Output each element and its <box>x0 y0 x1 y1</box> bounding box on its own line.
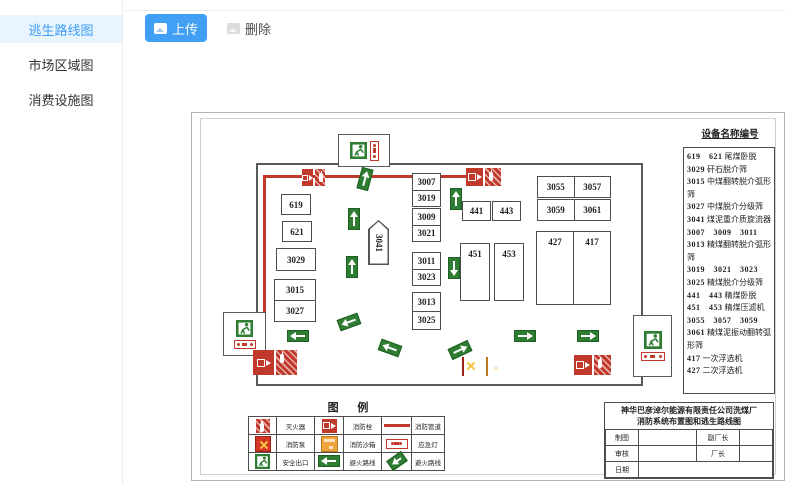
header-divider <box>123 10 786 11</box>
fire-sandbox-icon <box>321 436 338 452</box>
emergency-light-icon <box>386 439 408 449</box>
room-box: 427417 <box>536 231 611 305</box>
sidebar-item-consumer-facility-map[interactable]: 消费设施图 <box>0 85 122 113</box>
equipment-item: 417 一次浮选机 <box>687 353 771 366</box>
route-arrow-icon <box>346 256 358 278</box>
route-arrow-icon <box>287 330 309 342</box>
field-label: 制图 <box>606 430 639 446</box>
room-box: 3029 <box>276 248 316 271</box>
equipment-item: 451 453 精煤压滤机 <box>687 302 771 315</box>
room-box: 30113023 <box>412 252 441 286</box>
fire-station-bottom-left <box>253 350 297 375</box>
equipment-item: 3041 煤泥重介质旋流器 <box>687 214 771 227</box>
room-box: 30553057 <box>537 176 611 198</box>
safety-exit-right <box>633 315 672 377</box>
exit-icon <box>236 320 253 337</box>
fire-extinguisher-icon <box>315 169 325 186</box>
legend-label: 避火路线 <box>344 453 382 471</box>
fire-extinguisher-icon <box>594 355 611 375</box>
legend-title: 图 例 <box>312 399 392 415</box>
room-box: 453 <box>494 243 524 301</box>
field-value <box>639 430 697 446</box>
route-arrow-icon <box>514 330 536 342</box>
legend-label: 消防管道 <box>412 417 445 435</box>
field-value <box>639 446 697 462</box>
title-block: 神华巴彦淖尔能源有限责任公司洗煤厂 消防系统布置图和逃生路线图 制图 副厂长 审… <box>604 402 774 479</box>
equipment-item: 3027 中煤脱介分级筛 <box>687 201 771 214</box>
fire-hydrant-icon <box>466 168 483 186</box>
field-value <box>740 446 773 462</box>
legend-label: 消防泵 <box>277 435 315 453</box>
fire-hydrant-icon <box>322 419 337 433</box>
equipment-item: 3019 3021 3023 3025 精煤脱介分级筛 <box>687 264 771 289</box>
fire-pump-icon <box>255 436 271 452</box>
legend-label: 安全出口 <box>277 453 315 471</box>
room-box: 443 <box>492 201 521 221</box>
equipment-item: 3029 矸石脱介筛 <box>687 164 771 177</box>
legend-table: 灭火器 消防栓 消防管道 消防泵 消防沙箱 应急灯 安全出口 避火路线 避火路线 <box>248 416 445 471</box>
field-label: 厂长 <box>697 446 740 462</box>
emergency-light-icon <box>641 352 665 361</box>
room-box-pentagon: 3041 <box>368 220 389 265</box>
sidebar-item-escape-route-map[interactable]: 逃生路线图 <box>0 15 122 43</box>
legend-label: 灭火器 <box>277 417 315 435</box>
exit-icon <box>644 331 662 349</box>
field-label: 副厂长 <box>697 430 740 446</box>
route-arrow-diagonal-icon <box>386 450 408 470</box>
field-label: 日期 <box>606 462 639 478</box>
route-arrow-icon <box>348 208 360 230</box>
room-box: 30593061 <box>537 199 611 221</box>
fire-pump-icon <box>462 357 464 376</box>
delete-button[interactable]: 删除 <box>221 17 277 39</box>
field-value <box>639 462 773 478</box>
fire-hydrant-icon <box>253 350 274 375</box>
upload-button[interactable]: 上传 <box>145 14 207 42</box>
equipment-item: 427 二次浮选机 <box>687 365 771 378</box>
fire-sandbox-icon <box>486 357 488 376</box>
fire-station-bottom-right <box>574 355 611 375</box>
field-label: 审核 <box>606 446 639 462</box>
room-box: 30153027 <box>274 279 316 322</box>
room-box: 441 <box>462 201 491 221</box>
room-box: 30133025 <box>412 292 441 330</box>
emergency-light-icon <box>234 340 256 349</box>
route-arrow-icon <box>577 330 599 342</box>
room-box: 451 <box>460 243 490 301</box>
delete-image-icon <box>227 23 240 34</box>
fire-station-top-right <box>466 168 501 186</box>
sidebar: 逃生路线图 市场区域图 消费设施图 <box>0 0 123 485</box>
escape-route-diagram: 619 621 3029 30153027 3041 30073019 3009… <box>191 112 785 481</box>
route-arrow-left-icon <box>318 455 340 467</box>
equipment-item: 441 443 精煤卧脱 <box>687 290 771 303</box>
legend-label: 消防沙箱 <box>344 435 382 453</box>
equipment-item: 3007 3009 3011 3013 精煤翻转脱介弧形筛 <box>687 227 771 265</box>
room-box: 30093021 <box>412 208 441 242</box>
room-box: 619 <box>281 194 311 215</box>
route-arrow-icon <box>448 257 460 279</box>
fire-extinguisher-icon <box>485 168 501 186</box>
fire-hydrant-icon <box>574 355 592 375</box>
equipment-panel-title: 设备名称编号 <box>681 126 779 140</box>
emergency-light-icon <box>370 141 379 161</box>
exit-icon <box>350 142 367 159</box>
equipment-panel: 619 621 尾煤卧脱 3029 矸石脱介筛 3015 中煤翻转脱介弧形筛 3… <box>683 147 775 394</box>
field-value <box>740 430 773 446</box>
legend-label: 应急灯 <box>412 435 445 453</box>
fire-extinguisher-icon <box>276 350 297 375</box>
exit-icon <box>255 454 270 469</box>
equipment-item: 619 621 尾煤卧脱 <box>687 151 771 164</box>
drawing-title-line1: 神华巴彦淖尔能源有限责任公司洗煤厂 <box>606 405 772 416</box>
upload-image-icon <box>154 23 167 34</box>
fire-extinguisher-icon <box>256 419 270 433</box>
fire-hydrant-icon <box>302 169 313 186</box>
sidebar-item-market-area-map[interactable]: 市场区域图 <box>0 50 122 78</box>
equipment-item: 3055 3057 3059 3061 精煤泥振动翻转弧形筛 <box>687 315 771 353</box>
fire-pipe-icon <box>384 424 410 427</box>
room-box: 621 <box>282 221 312 242</box>
route-arrow-icon <box>450 188 462 210</box>
equipment-item: 3015 中煤翻转脱介弧形筛 <box>687 176 771 201</box>
legend-label: 消防栓 <box>344 417 382 435</box>
legend-label: 避火路线 <box>412 453 445 471</box>
safety-exit-top <box>338 134 390 167</box>
room-box: 30073019 <box>412 173 441 207</box>
drawing-title-line2: 消防系统布置图和逃生路线图 <box>606 416 772 427</box>
fire-station-top-left <box>302 169 325 186</box>
